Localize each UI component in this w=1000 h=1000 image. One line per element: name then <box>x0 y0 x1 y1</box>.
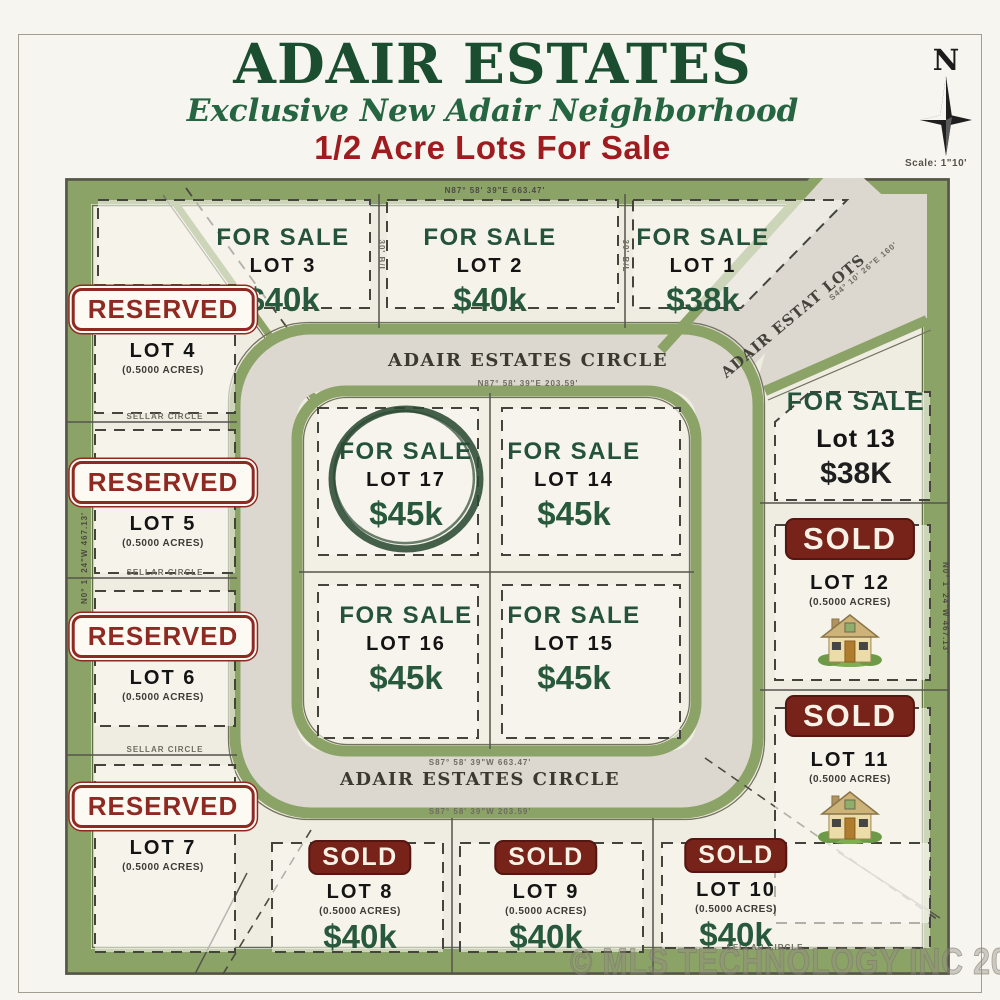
reserved-badge-lot-6: RESERVED <box>72 615 255 658</box>
plat-map: N87° 58' 39"E 663.47' N87° 58' 39"E 203.… <box>65 178 950 975</box>
lot-15: FOR SALE LOT 15 $45k <box>507 602 640 697</box>
lot-9-acreage: (0.5000 ACRES) <box>505 906 587 917</box>
lot-17: FOR SALE LOT 17 $45k <box>339 438 472 533</box>
header: ADAIR ESTATES Exclusive New Adair Neighb… <box>0 36 985 167</box>
lot-11-acreage: (0.5000 ACRES) <box>809 774 891 785</box>
lot-10-label: LOT 10 <box>696 879 776 902</box>
lot-2-label: LOT 2 <box>457 255 524 278</box>
lot-2-price: $40k <box>453 281 526 319</box>
survey-text: S87° 58' 39"W 203.59' <box>429 807 532 816</box>
lot-12-label: LOT 12 <box>810 572 890 595</box>
plat-map-page: ADAIR ESTATES Exclusive New Adair Neighb… <box>0 0 1000 1000</box>
survey-text: 30' B/L <box>377 240 386 273</box>
lot-3-price: $40k <box>246 281 319 319</box>
lot-6: RESERVED LOT 6 (0.5000 ACRES) <box>72 615 255 703</box>
sold-badge-lot-9: SOLD <box>494 840 597 875</box>
lot-14-status: FOR SALE <box>507 438 640 466</box>
lot-4-acreage: (0.5000 ACRES) <box>122 365 204 376</box>
lot-11-label: LOT 11 <box>811 749 890 772</box>
reserved-badge-lot-4: RESERVED <box>72 288 255 331</box>
lot-16: FOR SALE LOT 16 $45k <box>339 602 472 697</box>
lot-13-label: Lot 13 <box>816 425 896 454</box>
lot-10: SOLD LOT 10 (0.5000 ACRES) $40k <box>684 838 787 954</box>
survey-text: 30' B/L <box>621 240 630 273</box>
survey-text: N87° 58' 39"E 663.47' <box>445 186 546 195</box>
lot-14-price: $45k <box>537 495 610 533</box>
lot-12-acreage: (0.5000 ACRES) <box>809 597 891 608</box>
page-subtitle: Exclusive New Adair Neighborhood <box>0 93 985 129</box>
lot-6-label: LOT 6 <box>130 667 197 690</box>
lot-17-label: LOT 17 <box>366 469 446 492</box>
lot-8-label: LOT 8 <box>327 881 394 904</box>
survey-text: SELLAR CIRCLE <box>127 412 204 421</box>
lot-10-acreage: (0.5000 ACRES) <box>695 904 777 915</box>
lot-15-label: LOT 15 <box>534 633 614 656</box>
lot-2: FOR SALE LOT 2 $40k <box>423 224 556 319</box>
survey-text: SELLAR CIRCLE <box>127 745 204 754</box>
lot-1-label: LOT 1 <box>670 255 737 278</box>
lot-12: SOLD LOT 12 (0.5000 ACRES) <box>785 518 915 667</box>
lot-9: SOLD LOT 9 (0.5000 ACRES) $40k <box>494 840 597 956</box>
page-tagline: 1/2 Acre Lots For Sale <box>0 129 985 167</box>
lot-13-price: $38K <box>820 457 892 491</box>
sold-badge-lot-8: SOLD <box>308 840 411 875</box>
lot-8-price: $40k <box>323 918 396 956</box>
house-icon <box>817 611 883 667</box>
page-title: ADAIR ESTATES <box>0 36 985 92</box>
lot-17-status: FOR SALE <box>339 438 472 466</box>
compass-rose-icon: N <box>903 40 989 158</box>
street-label-adair-estates-circle-top: ADAIR ESTATES CIRCLE <box>388 350 668 371</box>
survey-text: N0° 1' 24"W 467.13' <box>941 562 950 654</box>
lot-2-status: FOR SALE <box>423 224 556 252</box>
lot-15-price: $45k <box>537 659 610 697</box>
scale-label: Scale: 1"10' <box>886 158 986 169</box>
lot-16-status: FOR SALE <box>339 602 472 630</box>
lot-7-acreage: (0.5000 ACRES) <box>122 862 204 873</box>
reserved-badge-lot-5: RESERVED <box>72 461 255 504</box>
lot-13-status: FOR SALE <box>787 388 925 417</box>
sold-badge-lot-12: SOLD <box>785 518 915 560</box>
lot-1-status: FOR SALE <box>636 224 769 252</box>
compass-north-label: N <box>933 43 960 77</box>
reserved-badge-lot-7: RESERVED <box>72 785 255 828</box>
survey-text: N87° 58' 39"E 203.59' <box>478 379 579 388</box>
sold-badge-lot-11: SOLD <box>785 695 915 737</box>
lot-5-acreage: (0.5000 ACRES) <box>122 538 204 549</box>
lot-11: SOLD LOT 11 (0.5000 ACRES) <box>785 695 915 844</box>
lot-3-status: FOR SALE <box>216 224 349 252</box>
lot-1: FOR SALE LOT 1 $38k <box>636 224 769 319</box>
survey-text: SELLAR CIRCLE <box>127 568 204 577</box>
watermark: © MLS TECHNOLOGY INC 2025 <box>570 941 1000 983</box>
lot-8: SOLD LOT 8 (0.5000 ACRES) $40k <box>308 840 411 956</box>
lot-14: FOR SALE LOT 14 $45k <box>507 438 640 533</box>
lot-15-status: FOR SALE <box>507 602 640 630</box>
lot-7: RESERVED LOT 7 (0.5000 ACRES) <box>72 785 255 873</box>
lot-9-label: LOT 9 <box>513 881 580 904</box>
street-label-adair-estates-circle-bottom: ADAIR ESTATES CIRCLE <box>340 769 620 790</box>
lot-16-price: $45k <box>369 659 442 697</box>
lot-6-acreage: (0.5000 ACRES) <box>122 692 204 703</box>
lot-4: RESERVED LOT 4 (0.5000 ACRES) <box>72 288 255 376</box>
lot-5: RESERVED LOT 5 (0.5000 ACRES) <box>72 461 255 549</box>
survey-text: S87° 58' 39"W 663.47' <box>429 758 532 767</box>
lot-7-label: LOT 7 <box>130 837 197 860</box>
lot-8-acreage: (0.5000 ACRES) <box>319 906 401 917</box>
lot-3-label: LOT 3 <box>250 255 317 278</box>
lot-17-price: $45k <box>369 495 442 533</box>
lot-13: FOR SALE Lot 13 $38K <box>787 388 925 491</box>
lot-16-label: LOT 16 <box>366 633 446 656</box>
lot-4-label: LOT 4 <box>130 340 197 363</box>
lot-14-label: LOT 14 <box>534 469 614 492</box>
sold-badge-lot-10: SOLD <box>684 838 787 873</box>
lot-1-price: $38k <box>666 281 739 319</box>
lot-5-label: LOT 5 <box>130 513 197 536</box>
house-icon <box>817 788 883 844</box>
